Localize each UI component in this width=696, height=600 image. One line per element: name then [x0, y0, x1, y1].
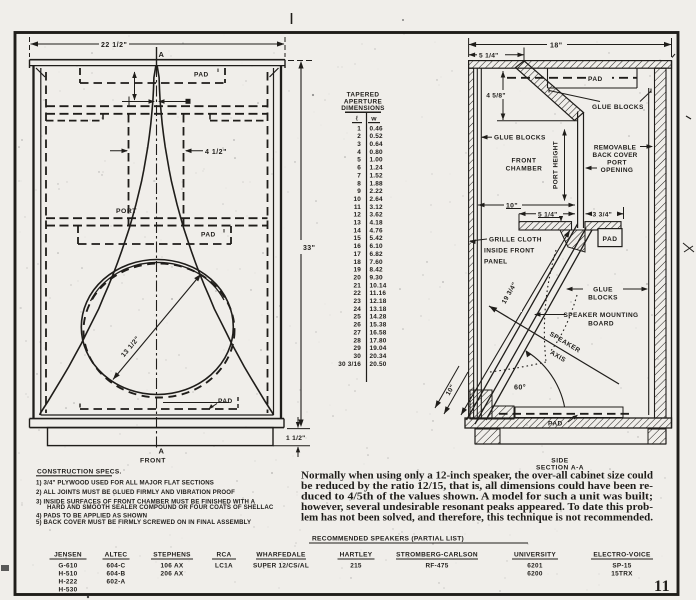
svg-text:16.58: 16.58 — [370, 329, 387, 336]
svg-text:duced to 4/5th of the values s: duced to 4/5th of the values shown. A mo… — [301, 491, 653, 502]
svg-text:106 AX: 106 AX — [161, 563, 184, 570]
svg-text:ℓ: ℓ — [355, 115, 359, 123]
svg-text:HARD AND SMOOTH SEALER COMPOUN: HARD AND SMOOTH SEALER COMPOUND OR FOUR … — [47, 504, 274, 511]
svg-text:H-510: H-510 — [59, 571, 78, 578]
svg-text:5: 5 — [357, 157, 361, 164]
svg-text:4.18: 4.18 — [370, 220, 383, 227]
svg-text:13.18: 13.18 — [370, 306, 387, 313]
svg-text:REMOVABLE: REMOVABLE — [594, 144, 637, 151]
svg-text:A: A — [159, 50, 165, 59]
svg-text:JENSEN: JENSEN — [54, 552, 82, 559]
svg-text:5.42: 5.42 — [370, 235, 383, 242]
svg-text:Normally when using only a 12-: Normally when using only a 12-inch speak… — [301, 470, 653, 481]
svg-text:4 1/2": 4 1/2" — [205, 149, 227, 156]
svg-text:20.34: 20.34 — [370, 353, 387, 360]
svg-text:3.12: 3.12 — [370, 204, 383, 211]
svg-text:6200: 6200 — [527, 571, 543, 578]
svg-text:22: 22 — [353, 290, 361, 297]
svg-text:19: 19 — [353, 267, 361, 274]
svg-text:lem has not been solved, and t: lem has not been solved, and therefore, … — [301, 513, 653, 524]
svg-text:25: 25 — [353, 314, 361, 321]
svg-text:7.60: 7.60 — [370, 259, 383, 266]
svg-text:28: 28 — [353, 337, 361, 344]
svg-text:3.62: 3.62 — [370, 212, 383, 219]
svg-text:GLUE BLOCKS: GLUE BLOCKS — [494, 135, 546, 142]
svg-text:RCA: RCA — [217, 552, 232, 559]
svg-text:14: 14 — [353, 227, 361, 234]
svg-text:20: 20 — [353, 274, 361, 281]
svg-text:0.80: 0.80 — [370, 149, 383, 156]
svg-text:2) ALL JOINTS MUST BE GLUED F: 2) ALL JOINTS MUST BE GLUED FIRMLY AND V… — [36, 489, 235, 496]
svg-text:8.42: 8.42 — [370, 267, 383, 274]
svg-text:27: 27 — [353, 329, 361, 336]
svg-text:ALTEC: ALTEC — [105, 552, 128, 559]
svg-text:BOARD: BOARD — [588, 321, 614, 328]
svg-text:GLUE: GLUE — [593, 287, 613, 294]
svg-text:21: 21 — [353, 282, 361, 289]
svg-text:CHAMBER: CHAMBER — [506, 166, 543, 173]
svg-text:30 3/16: 30 3/16 — [338, 361, 361, 368]
svg-text:6.82: 6.82 — [370, 251, 383, 258]
svg-text:4: 4 — [357, 149, 361, 156]
svg-text:INSIDE FRONT: INSIDE FRONT — [484, 248, 535, 255]
svg-text:6.10: 6.10 — [370, 243, 383, 250]
svg-text:G-610: G-610 — [58, 563, 77, 570]
svg-text:PORT HEIGHT: PORT HEIGHT — [553, 141, 560, 189]
svg-text:ELECTRO-VOICE: ELECTRO-VOICE — [593, 552, 651, 559]
svg-text:PAD: PAD — [218, 398, 233, 405]
svg-text:2.22: 2.22 — [370, 188, 383, 195]
svg-text:RECOMMENDED SPEAKERS (PARTIAL: RECOMMENDED SPEAKERS (PARTIAL LIST) — [312, 536, 464, 543]
svg-text:HARTLEY: HARTLEY — [340, 552, 373, 559]
svg-text:33": 33" — [303, 245, 315, 252]
svg-text:H-530: H-530 — [59, 587, 78, 594]
svg-text:604-B: 604-B — [107, 571, 126, 578]
svg-text:29: 29 — [353, 345, 361, 352]
svg-text:19.04: 19.04 — [370, 345, 387, 352]
svg-text:0.52: 0.52 — [370, 133, 383, 140]
svg-text:PAD: PAD — [201, 232, 216, 239]
svg-text:6: 6 — [357, 165, 361, 172]
svg-text:SUPER 12/CS/AL: SUPER 12/CS/AL — [253, 563, 309, 570]
svg-text:0.46: 0.46 — [370, 125, 383, 132]
svg-text:3 3/4": 3 3/4" — [593, 211, 613, 218]
svg-text:GLUE BLOCKS: GLUE BLOCKS — [592, 104, 644, 111]
svg-text:602-A: 602-A — [107, 579, 126, 586]
svg-text:FRONT: FRONT — [512, 157, 537, 164]
svg-text:15: 15 — [353, 235, 361, 242]
svg-text:1.24: 1.24 — [370, 165, 383, 172]
svg-text:18": 18" — [550, 43, 563, 50]
svg-text:SPEAKER MOUNTING: SPEAKER MOUNTING — [563, 312, 638, 319]
svg-text:1) 3/4" PLYWOOD USED FOR ALL: 1) 3/4" PLYWOOD USED FOR ALL MAJOR FLAT … — [36, 479, 214, 486]
svg-text:1: 1 — [357, 125, 361, 132]
svg-text:8: 8 — [357, 180, 361, 187]
svg-text:2: 2 — [357, 133, 361, 140]
svg-text:PAD: PAD — [194, 72, 209, 79]
svg-text:15TRX: 15TRX — [611, 571, 633, 578]
svg-text:23: 23 — [353, 298, 361, 305]
svg-text:20.50: 20.50 — [370, 361, 387, 368]
svg-text:OPENING: OPENING — [601, 167, 634, 174]
svg-text:FRONT: FRONT — [140, 458, 166, 465]
svg-text:17.80: 17.80 — [370, 337, 387, 344]
svg-text:4.76: 4.76 — [370, 227, 383, 234]
svg-text:PANEL: PANEL — [484, 259, 508, 266]
svg-text:16: 16 — [353, 243, 361, 250]
svg-text:1.88: 1.88 — [370, 180, 383, 187]
svg-text:10: 10 — [353, 196, 361, 203]
svg-text:WHARFEDALE: WHARFEDALE — [256, 552, 306, 559]
svg-text:4 5/8": 4 5/8" — [486, 93, 506, 100]
svg-text:12.18: 12.18 — [370, 298, 387, 305]
svg-text:18: 18 — [353, 259, 361, 266]
svg-text:9.30: 9.30 — [370, 274, 383, 281]
svg-text:however, several undesirable r: however, several undesirable resonant pe… — [301, 502, 654, 513]
svg-text:0.64: 0.64 — [370, 141, 383, 148]
svg-text:24: 24 — [353, 306, 361, 313]
svg-text:3: 3 — [357, 141, 361, 148]
svg-text:5 1/4": 5 1/4" — [479, 53, 499, 60]
svg-text:CONSTRUCTION SPECS.: CONSTRUCTION SPECS. — [37, 469, 122, 476]
svg-text:15.38: 15.38 — [370, 322, 387, 329]
svg-text:7: 7 — [357, 172, 361, 179]
svg-text:H-222: H-222 — [59, 579, 78, 586]
svg-text:30: 30 — [353, 353, 361, 360]
svg-text:STROMBERG-CARLSON: STROMBERG-CARLSON — [396, 552, 478, 559]
svg-text:GRILLE CLOTH: GRILLE CLOTH — [489, 237, 542, 244]
svg-text:SP-15: SP-15 — [612, 563, 631, 570]
svg-text:60°: 60° — [514, 383, 526, 392]
svg-text:be reduced by the ratio 12/15,: be reduced by the ratio 12/15, that is, … — [301, 481, 654, 492]
svg-text:1.00: 1.00 — [370, 157, 383, 164]
svg-text:PORT: PORT — [607, 160, 627, 167]
svg-text:206 AX: 206 AX — [161, 571, 184, 578]
svg-text:9: 9 — [357, 188, 361, 195]
svg-text:215: 215 — [350, 563, 362, 570]
svg-text:13: 13 — [353, 220, 361, 227]
svg-text:UNIVERSITY: UNIVERSITY — [514, 552, 556, 559]
svg-text:5) BACK COVER MUST BE FIRMLY: 5) BACK COVER MUST BE FIRMLY SCREWED ON … — [36, 519, 251, 526]
svg-text:1 1/2": 1 1/2" — [286, 435, 306, 442]
svg-text:14.28: 14.28 — [370, 314, 387, 321]
svg-text:11.16: 11.16 — [370, 290, 387, 297]
svg-text:604-C: 604-C — [107, 563, 126, 570]
svg-text:11: 11 — [354, 204, 361, 211]
svg-text:12: 12 — [353, 212, 361, 219]
svg-text:STEPHENS: STEPHENS — [153, 552, 191, 559]
svg-text:PAD: PAD — [603, 236, 618, 243]
svg-text:6201: 6201 — [527, 563, 543, 570]
svg-text:RF-475: RF-475 — [425, 563, 448, 570]
svg-text:A: A — [159, 447, 165, 456]
svg-text:17: 17 — [353, 251, 361, 258]
svg-text:1.52: 1.52 — [370, 172, 383, 179]
svg-text:26: 26 — [353, 322, 361, 329]
svg-text:BLOCKS: BLOCKS — [588, 295, 618, 302]
svg-text:BACK COVER: BACK COVER — [593, 152, 638, 159]
svg-text:PAD: PAD — [588, 76, 603, 83]
svg-text:11: 11 — [654, 578, 670, 595]
svg-text:22 1/2": 22 1/2" — [101, 42, 127, 49]
svg-text:w: w — [370, 116, 377, 123]
svg-text:10.14: 10.14 — [370, 282, 387, 289]
svg-text:2.64: 2.64 — [370, 196, 383, 203]
svg-text:LC1A: LC1A — [215, 563, 233, 570]
svg-text:DIMENSIONS: DIMENSIONS — [341, 105, 385, 112]
